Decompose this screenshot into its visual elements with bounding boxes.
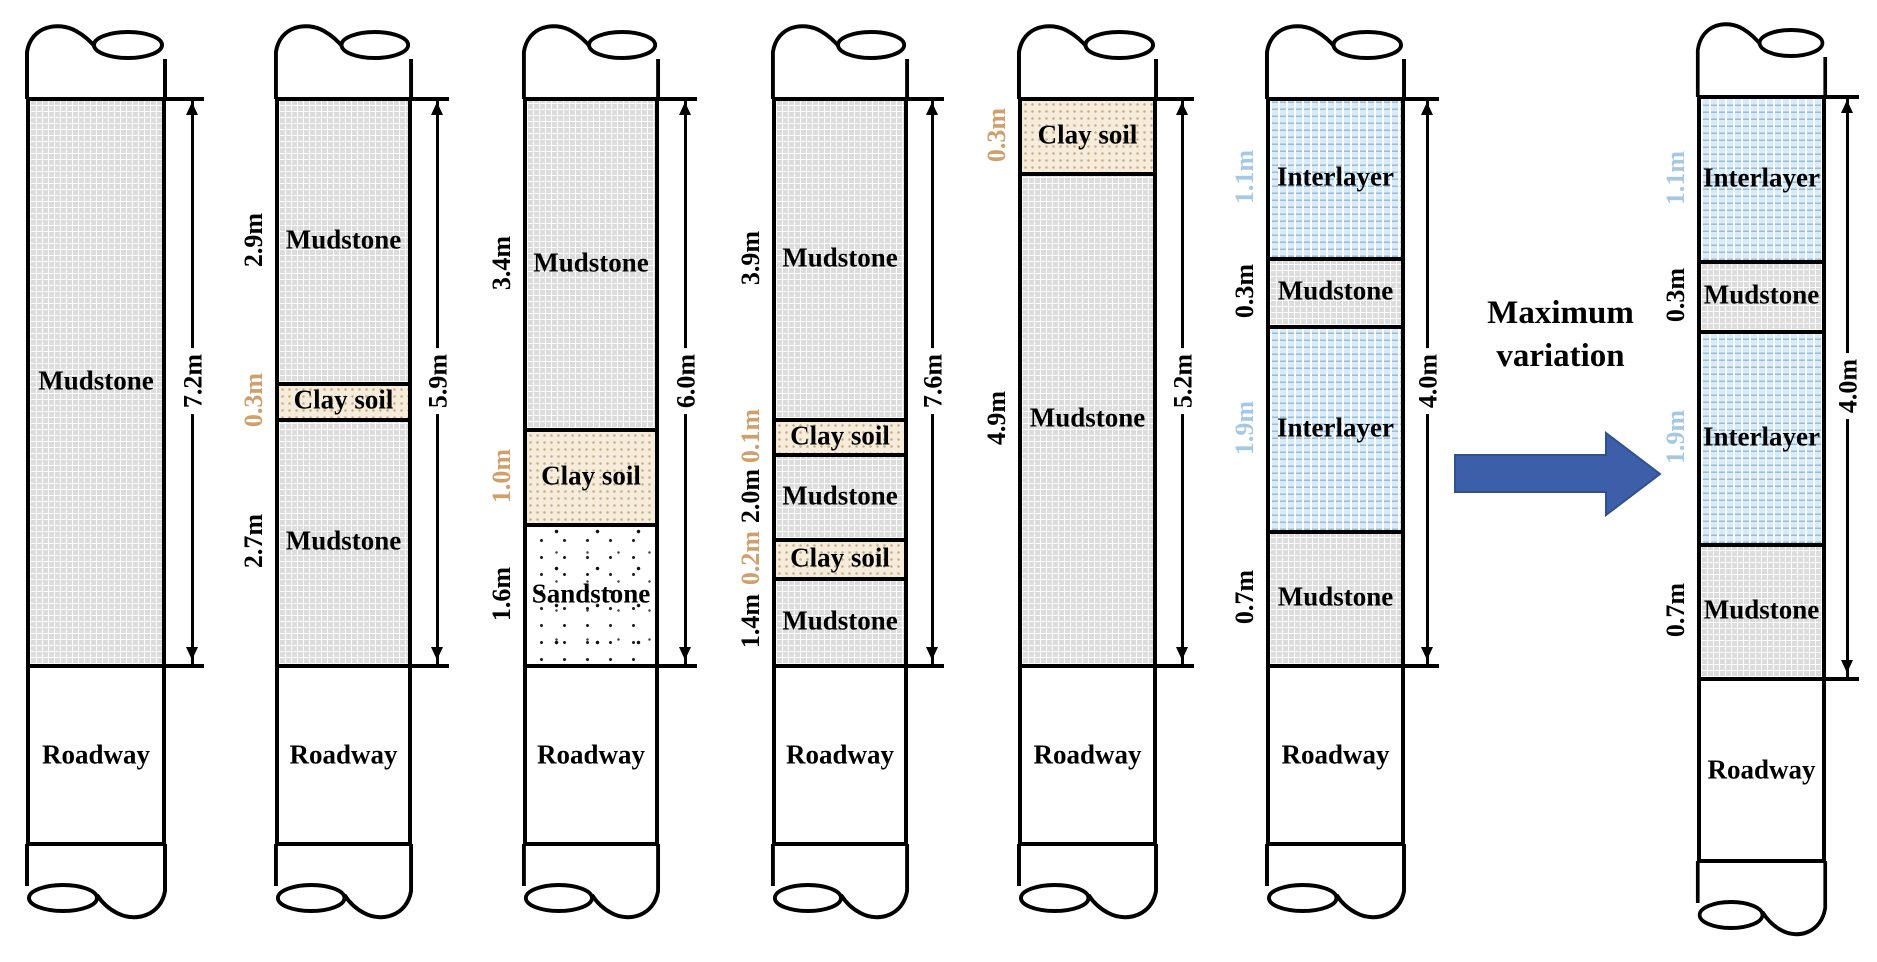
layer-thickness-label: 0.3m bbox=[241, 373, 267, 427]
dimension-tick-top bbox=[1157, 97, 1194, 101]
layer-label: Mudstone bbox=[533, 249, 649, 276]
dimension-arrow-up-icon bbox=[679, 102, 691, 115]
layer-label: Mudstone bbox=[1278, 584, 1394, 611]
column-break-top-icon bbox=[521, 19, 661, 99]
roadway-label: Roadway bbox=[42, 742, 150, 769]
layer-thickness-label: 1.9m bbox=[1663, 409, 1689, 463]
layer-thickness-label: 2.7m bbox=[241, 514, 267, 568]
dimension-arrow-down-icon bbox=[679, 647, 691, 660]
layer-label: Mudstone bbox=[1030, 405, 1146, 432]
layer-label: Mudstone bbox=[286, 528, 402, 555]
dimension-tick-bottom bbox=[1826, 677, 1859, 681]
dimension-tick-bottom bbox=[908, 664, 944, 668]
layer-label: Mudstone bbox=[38, 367, 154, 394]
roadway-label: Roadway bbox=[1707, 757, 1815, 784]
column-break-top-icon bbox=[273, 19, 414, 99]
dimension-tick-bottom bbox=[659, 664, 697, 668]
layer-label: Clay soil bbox=[790, 544, 890, 571]
maximum-variation-line1: Maximum bbox=[1448, 292, 1673, 335]
layer-thickness-label: 1.1m bbox=[1663, 150, 1689, 204]
dimension-label: 7.6m bbox=[919, 347, 946, 413]
dimension-arrow-down-icon bbox=[1176, 647, 1188, 660]
layer-label: Mudstone bbox=[782, 244, 898, 271]
column-break-bottom-icon bbox=[1016, 844, 1159, 928]
layer-label: Mudstone bbox=[1704, 282, 1820, 309]
layer-thickness-label: 0.3m bbox=[1663, 268, 1689, 322]
roadway-label: Roadway bbox=[289, 742, 397, 769]
layer-thickness-label: 1.1m bbox=[1232, 150, 1258, 204]
dimension-tick-top bbox=[166, 97, 204, 101]
dimension-label: 5.9m bbox=[424, 347, 451, 413]
dimension-tick-top bbox=[412, 97, 449, 101]
dimension-tick-top bbox=[1826, 95, 1859, 99]
dimension-arrow-up-icon bbox=[431, 102, 443, 115]
layer-label: Interlayer bbox=[1277, 164, 1394, 191]
layer-thickness-label: 1.9m bbox=[1232, 400, 1258, 454]
layer-label: Clay soil bbox=[541, 462, 641, 489]
dimension-label: 5.2m bbox=[1169, 347, 1196, 413]
dimension-arrow-up-icon bbox=[926, 102, 938, 115]
layer-label: Mudstone bbox=[1278, 278, 1394, 305]
dimension-tick-top bbox=[1405, 97, 1439, 101]
layer-label: Interlayer bbox=[1703, 423, 1820, 450]
column-break-bottom-icon bbox=[24, 844, 168, 928]
layer-label: Mudstone bbox=[286, 226, 402, 253]
layer-thickness-label: 0.3m bbox=[1232, 264, 1258, 318]
dimension-label: 4.0m bbox=[1834, 353, 1861, 419]
roadway-label: Roadway bbox=[1033, 742, 1141, 769]
column-break-top-icon bbox=[1016, 19, 1159, 99]
layer-thickness-label: 0.3m bbox=[984, 107, 1010, 161]
dimension-arrow-down-icon bbox=[186, 647, 198, 660]
dimension-label: 6.0m bbox=[672, 347, 699, 413]
dimension-arrow-down-icon bbox=[1421, 647, 1433, 660]
dimension-arrow-up-icon bbox=[1841, 100, 1853, 113]
layer-label: Clay soil bbox=[790, 422, 890, 449]
maximum-variation-label: Maximum variation bbox=[1448, 292, 1673, 378]
column-break-top-icon bbox=[1695, 17, 1828, 97]
layer-thickness-label: 0.2m bbox=[738, 530, 764, 584]
roadway-label: Roadway bbox=[786, 742, 894, 769]
dimension-arrow-up-icon bbox=[186, 102, 198, 115]
column-break-bottom-icon bbox=[770, 844, 910, 928]
column-break-bottom-icon bbox=[1264, 844, 1407, 928]
column-break-bottom-icon bbox=[521, 844, 661, 928]
layer-thickness-label: 1.4m bbox=[738, 593, 764, 647]
roadway-label: Roadway bbox=[1281, 742, 1389, 769]
dimension-arrow-down-icon bbox=[431, 647, 443, 660]
roadway-label: Roadway bbox=[537, 742, 645, 769]
variation-arrow-icon bbox=[1454, 431, 1662, 517]
dimension-arrow-down-icon bbox=[1841, 660, 1853, 673]
layer-label: Clay soil bbox=[1038, 121, 1138, 148]
dimension-tick-bottom bbox=[166, 664, 204, 668]
layer-thickness-label: 4.9m bbox=[984, 391, 1010, 445]
dimension-arrow-up-icon bbox=[1176, 102, 1188, 115]
layer-label: Interlayer bbox=[1703, 164, 1820, 191]
column-break-bottom-icon bbox=[1695, 861, 1828, 945]
dimension-tick-bottom bbox=[1157, 664, 1194, 668]
dimension-tick-bottom bbox=[412, 664, 449, 668]
dimension-tick-top bbox=[908, 97, 944, 101]
maximum-variation-line2: variation bbox=[1448, 335, 1673, 378]
column-break-top-icon bbox=[770, 19, 910, 99]
layer-label: Sandstone bbox=[532, 580, 651, 607]
dimension-label: 7.2m bbox=[179, 347, 206, 413]
layer-thickness-label: 3.9m bbox=[738, 230, 764, 284]
dimension-arrow-up-icon bbox=[1421, 102, 1433, 115]
layer-thickness-label: 2.0m bbox=[738, 468, 764, 522]
layer-thickness-label: 0.1m bbox=[738, 408, 764, 462]
layer-label: Clay soil bbox=[294, 387, 394, 414]
dimension-label: 4.0m bbox=[1414, 347, 1441, 413]
layer-thickness-label: 2.9m bbox=[241, 212, 267, 266]
layer-thickness-label: 1.0m bbox=[489, 448, 515, 502]
layer-thickness-label: 0.7m bbox=[1663, 583, 1689, 637]
layer-thickness-label: 3.4m bbox=[489, 235, 515, 289]
stratigraphic-columns-figure: Maximum variation MudstoneRoadway 7.2m M… bbox=[0, 0, 1877, 962]
column-break-top-icon bbox=[24, 19, 168, 99]
layer-thickness-label: 0.7m bbox=[1232, 570, 1258, 624]
dimension-arrow-down-icon bbox=[926, 647, 938, 660]
layer-label: Mudstone bbox=[782, 607, 898, 634]
column-break-bottom-icon bbox=[273, 844, 414, 928]
layer-label: Interlayer bbox=[1277, 414, 1394, 441]
dimension-tick-bottom bbox=[1405, 664, 1439, 668]
column-break-top-icon bbox=[1264, 19, 1407, 99]
layer-label: Mudstone bbox=[1704, 597, 1820, 624]
dimension-tick-top bbox=[659, 97, 697, 101]
layer-thickness-label: 1.6m bbox=[489, 566, 515, 620]
layer-label: Mudstone bbox=[782, 482, 898, 509]
